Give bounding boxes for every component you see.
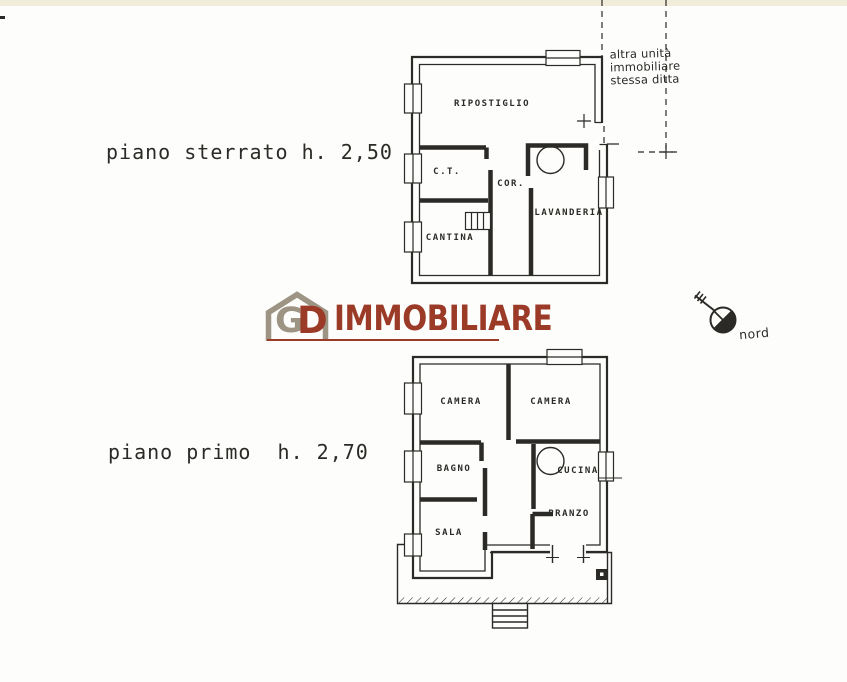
basement-stairs [466,213,491,230]
plan-linework [0,0,847,682]
room-label-cor: COR. [497,179,525,189]
boiler-circle [537,147,564,174]
room-label-cantina: CANTINA [426,233,474,243]
logo-brand-text: IMMOBILIARE [334,299,552,339]
room-label-cucina: CUCINA [557,466,599,476]
terrace-door [546,543,590,563]
room-label-ct: C.T. [433,167,461,177]
first-floor-label: piano primo h. 2,70 [108,440,369,464]
room-label-pranzo: PRANZO [548,509,590,519]
room-label-lavanderia: LAVANDERIA [534,208,603,218]
floor-plan-document: piano sterrato h. 2,50 piano primo h. 2,… [0,0,847,682]
room-label-camera-2: CAMERA [530,397,572,407]
room-label-bagno: BAGNO [437,464,472,474]
room-label-sala: SALA [435,528,463,538]
first-floor-partitions [420,364,600,550]
basement-floor-label: piano sterrato h. 2,50 [106,140,393,164]
room-label-ripostiglio: RIPOSTIGLIO [454,99,530,109]
north-label: nord [738,325,770,343]
survey-cross-marks [577,114,673,159]
logo-monogram-d: D [297,299,328,342]
first-floor-windows [405,350,623,557]
logo-underline [267,339,499,341]
north-compass [695,292,736,333]
other-unit-annotation: altra unità immobiliare stessa ditta [610,46,721,88]
room-label-camera-1: CAMERA [440,397,482,407]
entrance-steps [493,604,528,629]
basement-windows [405,51,614,253]
